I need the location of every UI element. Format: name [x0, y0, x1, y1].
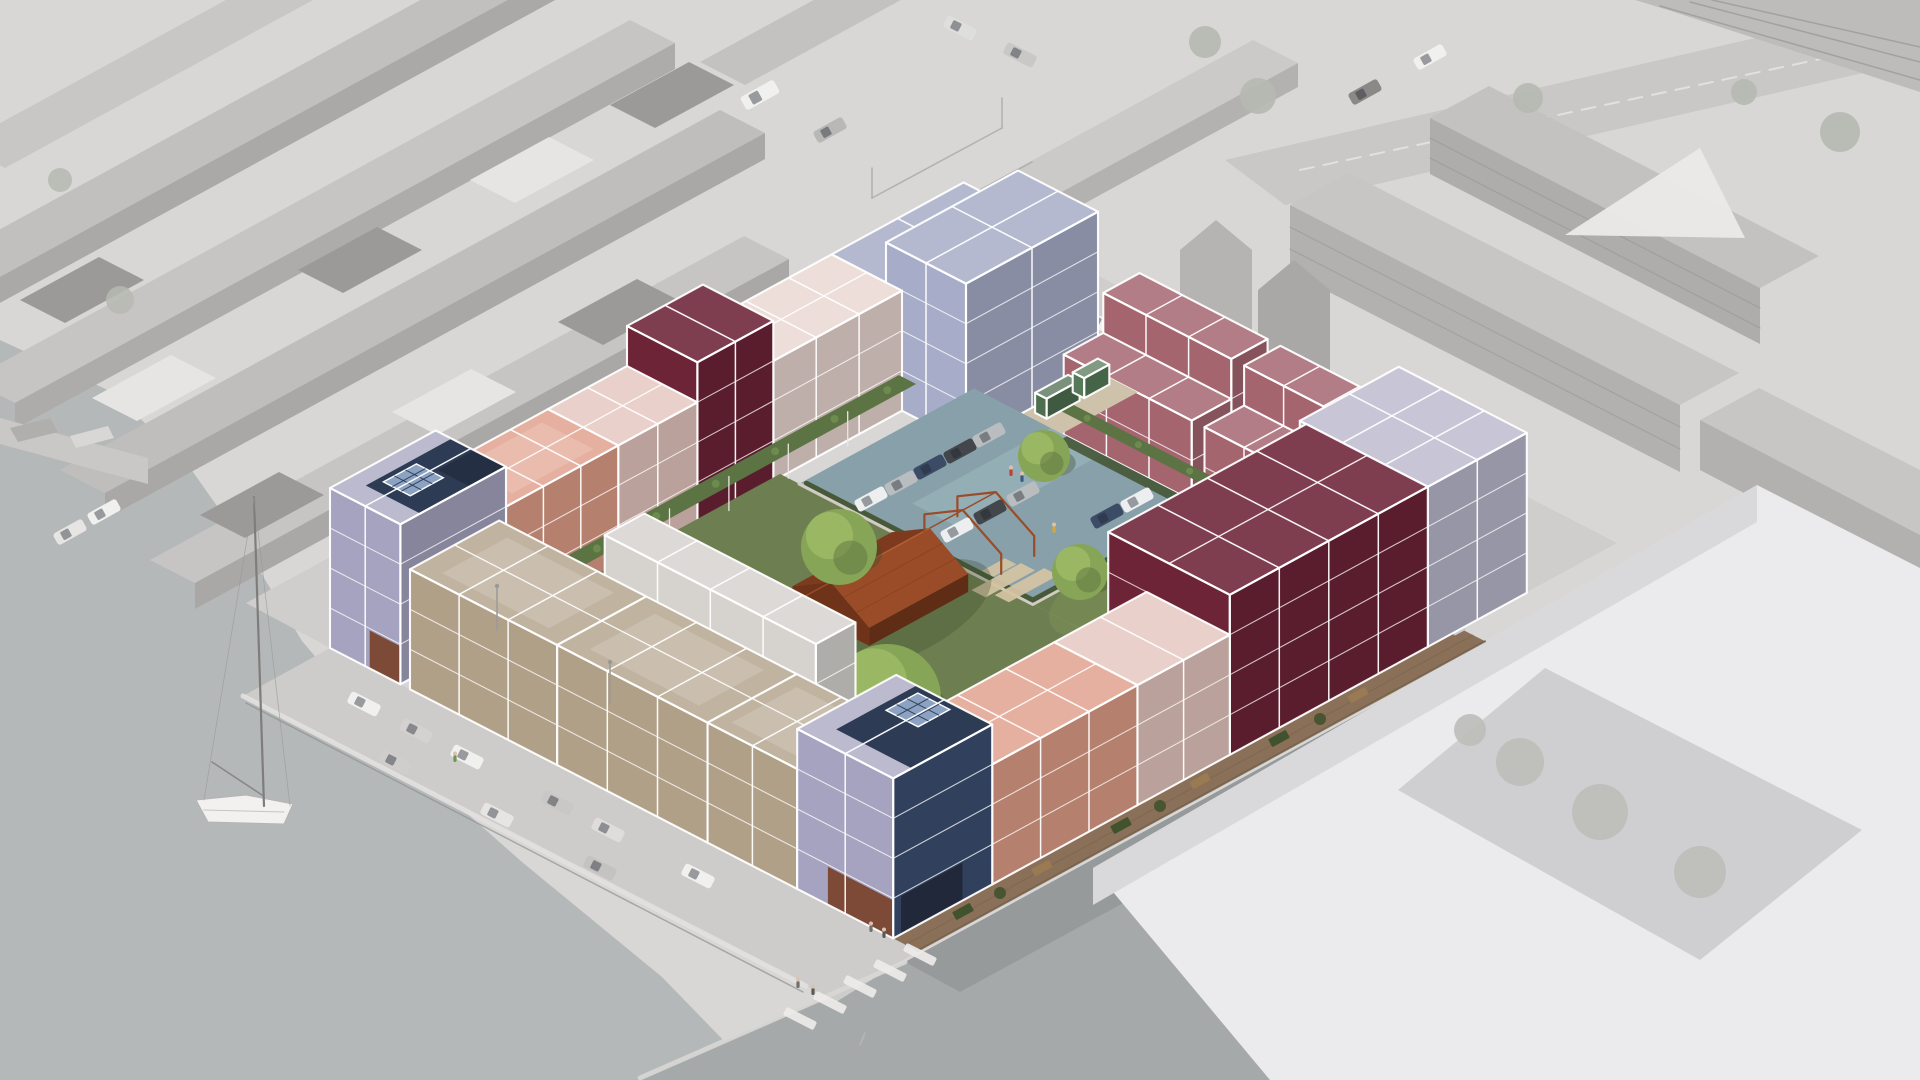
block-corner-south: [797, 675, 992, 939]
court-tree: [1674, 846, 1726, 898]
tree-shade: [833, 541, 867, 575]
balcony-shrub: [1135, 441, 1142, 448]
tree-shade: [1040, 452, 1063, 475]
boardwalk-bush: [1314, 713, 1326, 725]
bg-tree: [48, 168, 72, 192]
tree-shade: [1076, 567, 1101, 592]
balcony-shrub: [1186, 468, 1193, 475]
person-body: [1020, 475, 1023, 482]
person-body: [811, 988, 814, 995]
person-head: [453, 752, 457, 756]
person-body: [1052, 526, 1055, 533]
walkway-shrub: [712, 480, 720, 488]
aerial-render: [0, 0, 1920, 1080]
walkway-shrub: [883, 386, 891, 394]
person: [882, 928, 886, 939]
person-head: [1009, 466, 1013, 470]
person-head: [1052, 523, 1056, 527]
bg-tree: [106, 286, 134, 314]
person: [453, 752, 457, 763]
balcony-shrub: [1084, 415, 1091, 422]
court-tree: [1572, 784, 1628, 840]
person-head: [1020, 472, 1024, 476]
person: [1052, 523, 1056, 534]
aerial-render-stage: [0, 0, 1920, 1080]
lamp-head: [495, 584, 499, 588]
bg-tree: [1513, 83, 1543, 113]
person-body: [882, 931, 885, 938]
person: [1009, 466, 1013, 477]
person-head: [882, 928, 886, 932]
walkway-shrub: [831, 415, 839, 423]
walkway-shrub: [771, 447, 779, 455]
person: [796, 978, 800, 989]
person-body: [453, 755, 456, 762]
person-head: [811, 985, 815, 989]
person: [811, 985, 815, 996]
court-tree: [1454, 714, 1486, 746]
screenshot-root: { "meta": { "label": "Aerial axonometric…: [0, 0, 1920, 1080]
walkway-shrub: [593, 545, 601, 553]
bg-tree: [1189, 26, 1221, 58]
person-body: [796, 981, 799, 988]
lamp-head: [608, 660, 612, 664]
boardwalk-bush: [1154, 800, 1166, 812]
bg-tree: [1240, 78, 1276, 114]
bg-tree: [1731, 79, 1757, 105]
bg-tree: [1820, 112, 1860, 152]
boardwalk-bush: [994, 887, 1006, 899]
person: [1020, 472, 1024, 483]
person-head: [796, 978, 800, 982]
person: [869, 922, 873, 933]
person-body: [869, 925, 872, 932]
person-head: [869, 922, 873, 926]
person-body: [1009, 469, 1012, 476]
court-tree: [1496, 738, 1544, 786]
